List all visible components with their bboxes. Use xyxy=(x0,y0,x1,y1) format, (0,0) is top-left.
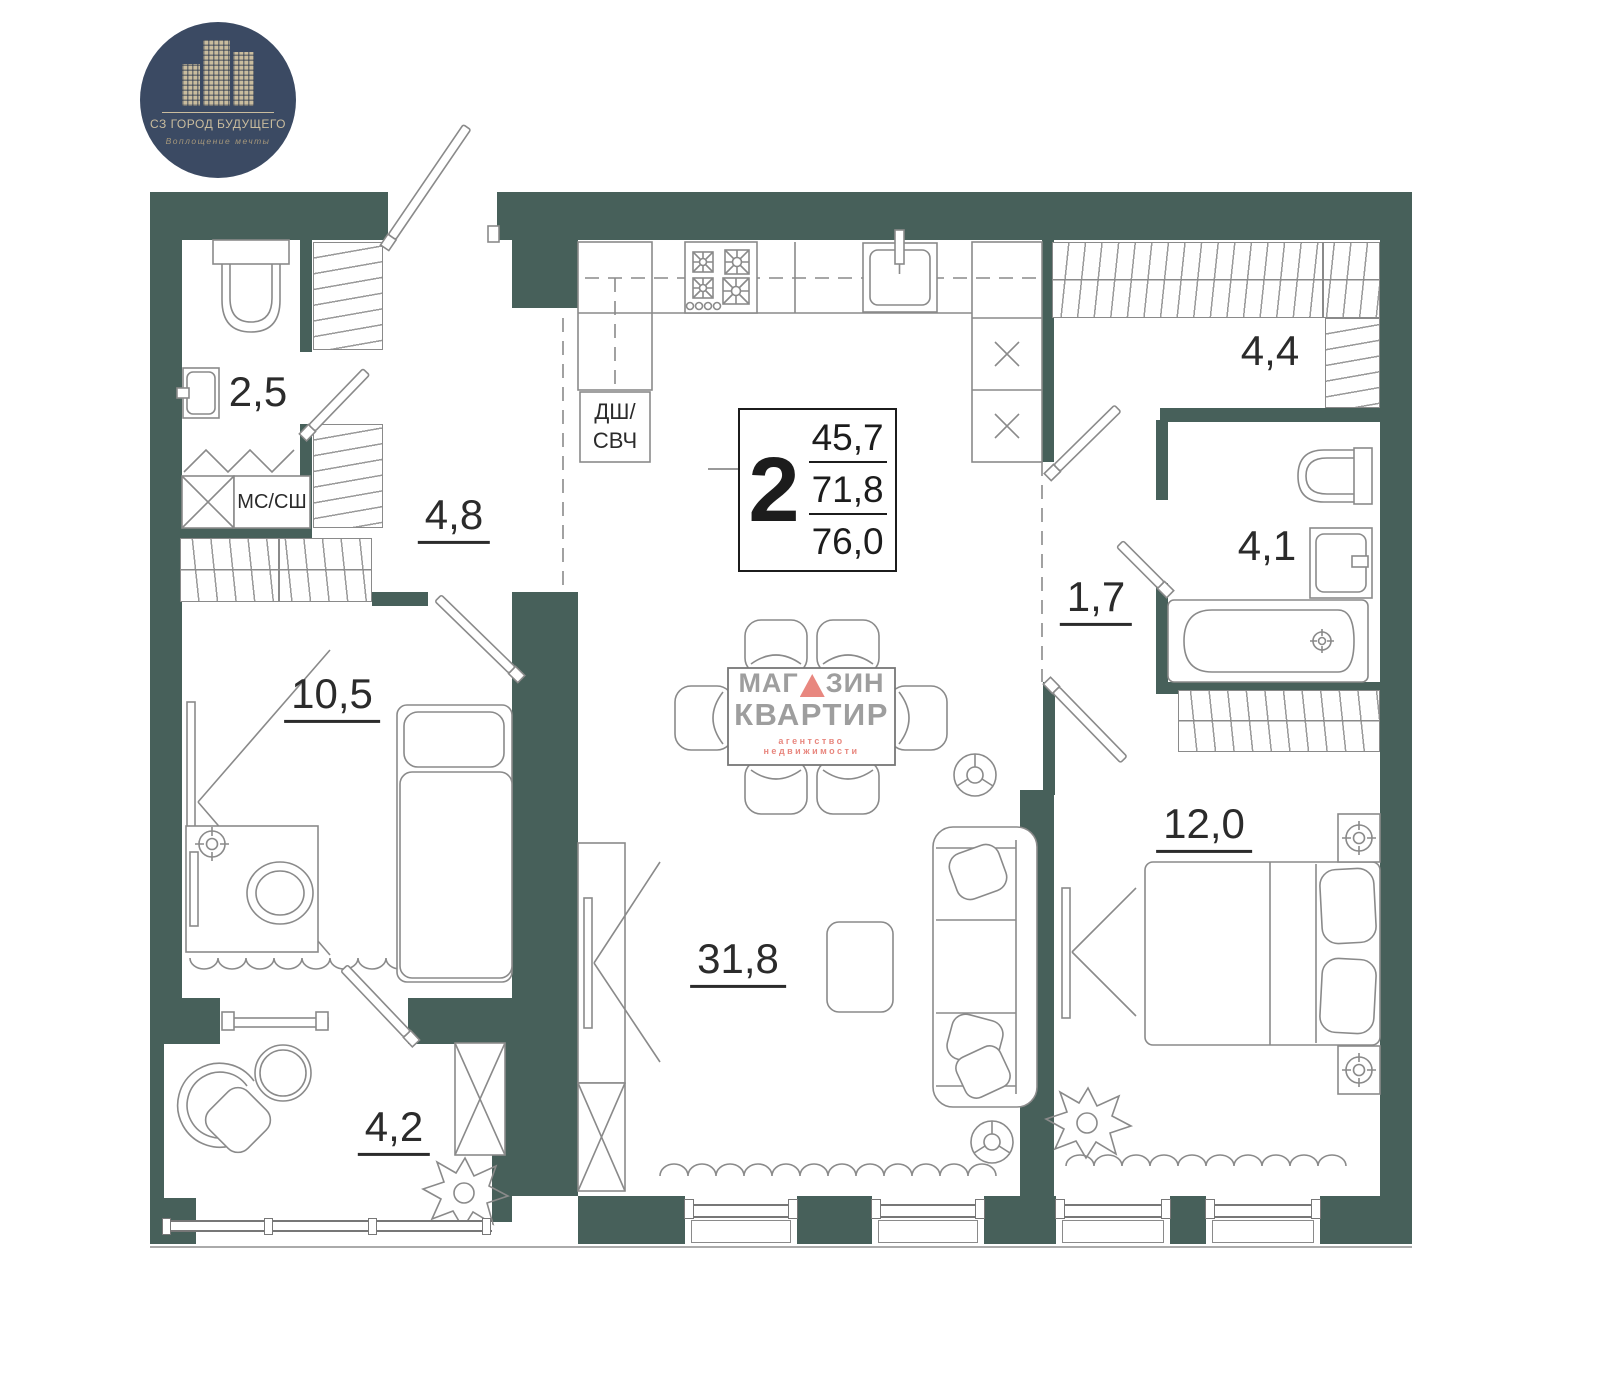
nightstand xyxy=(1338,1046,1380,1094)
room-label-hallway: 4,8 xyxy=(418,492,490,544)
room-label-bathroom-small: 2,5 xyxy=(229,369,287,415)
room-label-kitchen-living: 31,8 xyxy=(690,936,786,988)
triangle-logo-icon xyxy=(800,674,825,697)
room-label-balcony: 4,2 xyxy=(358,1104,430,1156)
agency-watermark: МАГЗИН КВАРТИР агентство недвижимости xyxy=(728,670,895,756)
bathtub xyxy=(1168,600,1368,682)
window-cap xyxy=(871,1199,881,1219)
bed-double xyxy=(1145,862,1380,1045)
cabinet-balcony xyxy=(455,1043,505,1155)
floor-plan: 2,5 4,8 10,5 4,2 31,8 1,7 4,4 4,1 12,0 М… xyxy=(0,0,1600,1390)
washer-dryer-label: МС/СШ xyxy=(234,476,310,528)
dw-microwave-label: ДШ/ СВЧ xyxy=(580,398,650,455)
window xyxy=(1206,1196,1320,1244)
glazing-post xyxy=(482,1218,491,1235)
building-tower-icon xyxy=(203,40,230,106)
floor-lamp xyxy=(971,1121,1013,1163)
nightstand xyxy=(1338,814,1380,862)
door-bedroom-small xyxy=(435,595,525,683)
door-bedroom-main xyxy=(1043,677,1127,763)
window-cap xyxy=(788,1199,798,1219)
living-area-value: 45,7 xyxy=(809,416,887,463)
window-cap xyxy=(1055,1199,1065,1219)
side-table-round xyxy=(255,1045,311,1101)
bed-single xyxy=(397,705,512,982)
tv-stand-living xyxy=(578,843,660,1083)
armchair xyxy=(178,1063,277,1158)
building-tower-icon xyxy=(233,52,254,106)
balcony-window xyxy=(222,1012,328,1030)
toilet xyxy=(1298,448,1372,504)
coffee-table xyxy=(827,922,893,1012)
window-sill xyxy=(1212,1220,1314,1243)
dw-label-line1: ДШ/ xyxy=(580,398,650,427)
window-frame xyxy=(1210,1204,1316,1218)
window-frame xyxy=(876,1204,980,1218)
window-cap xyxy=(1161,1199,1171,1219)
window-frame xyxy=(689,1204,793,1218)
glazing-post xyxy=(264,1218,273,1235)
entrance-jamb xyxy=(488,226,499,242)
window xyxy=(1056,1196,1170,1244)
room-label-bathroom: 4,1 xyxy=(1238,523,1296,569)
watermark-subtitle: агентство недвижимости xyxy=(728,736,895,756)
window-cap xyxy=(684,1199,694,1219)
window-cap xyxy=(975,1199,985,1219)
room-label-bedroom-small: 10,5 xyxy=(284,671,380,723)
watermark-text-suffix: ЗИН xyxy=(826,670,885,697)
bathroom-sink xyxy=(177,368,219,418)
building-tower-icon xyxy=(182,64,200,106)
apartment-area-value: 71,8 xyxy=(809,468,887,515)
logo-divider xyxy=(162,112,274,113)
logo-title: СЗ ГОРОД БУДУЩЕГО xyxy=(150,117,286,131)
balcony-glazing xyxy=(164,1220,492,1232)
door-bathroom-small xyxy=(299,368,369,440)
rooms-count: 2 xyxy=(748,451,799,529)
window-sill xyxy=(878,1220,978,1243)
kitchen-sink xyxy=(863,230,937,312)
bathroom-sink xyxy=(1310,528,1372,598)
window-cap xyxy=(1311,1199,1321,1219)
window-sill xyxy=(691,1220,791,1243)
cabinet-living xyxy=(578,1083,625,1191)
curtain-bedroom-main xyxy=(1066,1155,1346,1166)
window xyxy=(685,1196,797,1244)
buildings-icon xyxy=(182,40,254,106)
window xyxy=(872,1196,984,1244)
floor-lamp xyxy=(954,754,996,796)
plant xyxy=(423,1158,508,1228)
toilet xyxy=(213,240,289,332)
logo-tagline: Воплощение мечты xyxy=(166,136,271,146)
dw-label-line2: СВЧ xyxy=(580,427,650,456)
door-entrance xyxy=(381,124,472,250)
tv-bedroom-main xyxy=(1062,888,1136,1018)
watermark-text-prefix: МАГ xyxy=(738,670,798,697)
curtain-living xyxy=(660,1164,996,1176)
dimension-tick xyxy=(708,468,738,470)
glazing-post xyxy=(162,1218,171,1235)
apartment-info-box: 2 45,7 71,8 76,0 xyxy=(738,408,897,572)
watermark-line1: МАГЗИН xyxy=(728,670,895,697)
room-label-bedroom-main: 12,0 xyxy=(1156,801,1252,853)
areas-column: 45,7 71,8 76,0 xyxy=(809,416,887,565)
watermark-line2: КВАРТИР xyxy=(728,697,895,733)
room-label-wardrobe-room: 4,4 xyxy=(1241,328,1299,374)
total-area-value: 76,0 xyxy=(809,520,887,565)
window-sill xyxy=(1062,1220,1164,1243)
plant xyxy=(1046,1088,1131,1158)
window-cap xyxy=(1205,1199,1215,1219)
stove xyxy=(685,242,757,313)
door-dressing-room xyxy=(1044,405,1121,481)
sofa xyxy=(933,827,1037,1107)
developer-logo: СЗ ГОРОД БУДУЩЕГО Воплощение мечты xyxy=(140,22,296,178)
glazing-post xyxy=(368,1218,377,1235)
window-frame xyxy=(1060,1204,1166,1218)
room-label-corridor: 1,7 xyxy=(1060,574,1132,626)
towel-radiator xyxy=(184,450,294,472)
